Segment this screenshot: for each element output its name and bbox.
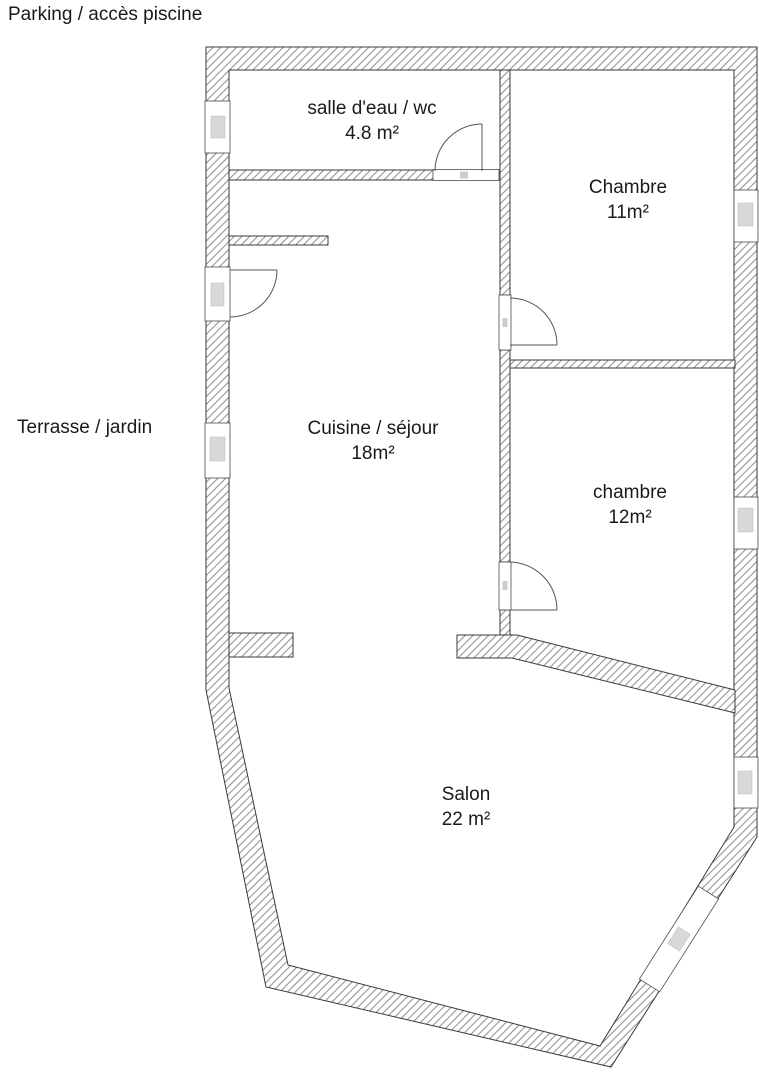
window-left-terrasse-door (205, 267, 230, 321)
outside-label-terrasse: Terrasse / jardin (17, 417, 152, 439)
interior-wall-vertical-top (500, 70, 510, 295)
floor-plan-canvas (0, 0, 759, 1080)
interior-wall-kitchen-bottom-left (229, 633, 293, 657)
window-left-cuisine (205, 423, 230, 478)
door-swing-arc (510, 298, 557, 345)
room-name: Salon (442, 782, 491, 807)
door-terrasse-cuisine (230, 270, 277, 317)
room-area: 18m² (308, 441, 439, 466)
door-swing-arc (230, 270, 277, 317)
room-label-cuisine-sejour: Cuisine / séjour 18m² (308, 416, 439, 466)
room-area: 4.8 m² (307, 121, 436, 146)
door-chambre-12 (510, 562, 557, 610)
door-openings (433, 170, 511, 611)
interior-wall-chambre-divider (510, 360, 735, 368)
floor-plan-page: Parking / accès piscine Terrasse / jardi… (0, 0, 759, 1080)
room-area: 12m² (593, 505, 667, 530)
window-diagonal-salon (639, 886, 718, 992)
door-swing-arc (435, 124, 482, 171)
room-name: salle d'eau / wc (307, 96, 436, 121)
door-chambre-11 (510, 298, 557, 345)
window-glass (738, 508, 753, 532)
door-salle-deau (435, 124, 482, 171)
window-right-salon (734, 757, 758, 808)
interior-wall-vertical-middle (500, 350, 510, 562)
window-glass (211, 116, 225, 138)
exterior-wall (206, 47, 757, 1067)
window-right-chambre-11 (734, 190, 758, 242)
window-glass (738, 771, 752, 794)
room-name: Chambre (589, 175, 667, 200)
room-label-chambre-11: Chambre 11m² (589, 175, 667, 225)
window-left-salle-deau (205, 101, 230, 153)
room-area: 22 m² (442, 807, 491, 832)
room-label-salle-deau: salle d'eau / wc 4.8 m² (307, 96, 436, 146)
interior-wall-kitchen-bottom-diagonal (457, 635, 735, 713)
interior-wall-kitchen-stub (229, 236, 328, 245)
room-name: chambre (593, 480, 667, 505)
room-name: Cuisine / séjour (308, 416, 439, 441)
window-glass (210, 437, 225, 461)
room-area: 11m² (589, 200, 667, 225)
window-glass (211, 283, 224, 306)
window-glass (738, 203, 753, 226)
door-swing-arc (510, 562, 557, 610)
room-label-salon: Salon 22 m² (442, 782, 491, 832)
outside-label-parking: Parking / accès piscine (8, 4, 202, 26)
room-label-chambre-12: chambre 12m² (593, 480, 667, 530)
windows (205, 101, 758, 992)
window-right-chambre-12 (734, 497, 758, 549)
